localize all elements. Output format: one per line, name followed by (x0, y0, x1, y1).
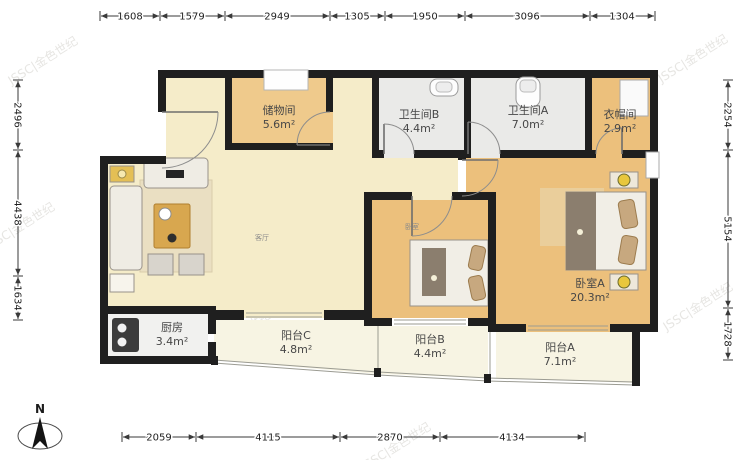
room-label-balconyC: 阳台C (281, 328, 311, 342)
kitchen-stove (112, 318, 139, 352)
dim-label: 1304 (609, 12, 634, 23)
wall-segment (500, 150, 596, 158)
bathB-toilet-tank (436, 82, 452, 92)
sliding-door-line (394, 320, 466, 324)
wall-segment (208, 306, 216, 334)
ruler-left: 2496 4438 1634 (12, 80, 24, 320)
wall-segment (100, 306, 108, 364)
room-label-living: 客厅 (255, 233, 269, 242)
north-arrow: N (18, 402, 62, 449)
room-area-balconyB: 4.4m² (414, 347, 447, 360)
bed-lamp-dot (431, 275, 437, 281)
dim-label: 5154 (722, 216, 733, 241)
room-label-storage: 储物间 (263, 103, 296, 117)
wall-segment (610, 324, 650, 332)
bedA-lamp-dot (577, 229, 583, 235)
dim-label: 4134 (499, 433, 524, 444)
ruler-top: 1608 1579 2949 1305 1950 3096 1304 (100, 11, 655, 23)
wall-segment (158, 70, 166, 112)
dim-label: 2870 (377, 433, 402, 444)
wall-segment (100, 156, 166, 164)
wall-segment (100, 356, 216, 364)
wall-segment (585, 78, 592, 158)
dim-label: 3096 (514, 12, 539, 23)
dim-label: 1634 (12, 285, 23, 310)
dim-label: 2254 (722, 102, 733, 127)
wall-segment (372, 150, 384, 158)
compass-label: N (35, 402, 45, 416)
ruler-right: 2254 5154 1728 (722, 80, 734, 360)
sofa-main (110, 186, 142, 270)
room-label-balconyA: 阳台A (545, 340, 575, 354)
room-label-bedroomA: 卧室A (575, 276, 605, 290)
dim-label: 2059 (146, 433, 171, 444)
dim-label: 2496 (12, 102, 23, 127)
dim-label: 2949 (264, 12, 289, 23)
ottoman (148, 254, 173, 275)
wall-segment (364, 192, 372, 326)
kettle-icon (168, 234, 177, 243)
burner-icon (118, 324, 127, 333)
glazing-post (484, 374, 491, 383)
wall-segment (100, 156, 108, 314)
bedroom-bed-chaise (422, 248, 446, 296)
wall-segment (632, 326, 640, 386)
room-label-bathA: 卫生间A (508, 103, 549, 117)
dim-label: 4438 (12, 200, 23, 225)
floor-plan-canvas: JSSC|金色世纪 JSSC|金色世纪 JSSC|金色世纪 JSSC|金色世纪 … (0, 0, 746, 460)
room-label-balconyB: 阳台B (415, 332, 445, 346)
ottoman (179, 254, 204, 275)
room-area-storage: 5.6m² (263, 118, 296, 131)
wall-segment (372, 78, 379, 158)
wall-segment (650, 70, 658, 332)
room-area-cloakroom: 2.9m² (604, 122, 637, 135)
dim-label: 1608 (117, 12, 142, 23)
glazing-post (374, 368, 381, 377)
dim-label: 1728 (722, 321, 733, 346)
room-label-bedroom: 卧室 (405, 222, 419, 231)
wall-segment (225, 78, 232, 150)
wall-segment (225, 143, 333, 150)
watermark-text: JSSC|金色世纪 (654, 31, 730, 86)
room-area-kitchen: 3.4m² (156, 335, 189, 348)
watermark-text: JSSC|金色世纪 (0, 199, 57, 254)
wall-segment (208, 342, 216, 364)
dim-label: 1305 (344, 12, 369, 23)
tv-console (166, 170, 184, 178)
room-label-cloakroom: 衣帽间 (604, 107, 637, 121)
room-label-kitchen: 厨房 (161, 321, 183, 334)
wall-segment (326, 78, 333, 112)
dim-label: 4115 (255, 433, 280, 444)
side-table (110, 274, 134, 292)
bedroomA-window (646, 152, 659, 178)
nightstand-lamp-icon (618, 174, 630, 186)
room-label-bathB: 卫生间B (399, 107, 440, 121)
room-area-bedroomA: 20.3m² (570, 291, 610, 304)
wall-segment (496, 324, 526, 332)
dim-label: 1950 (412, 12, 437, 23)
wall-segment (100, 306, 216, 314)
wall-segment (458, 150, 466, 160)
room-area-balconyA: 7.1m² (544, 355, 577, 368)
bathA-toilet-tank (520, 80, 536, 92)
nightstand-lamp-icon (618, 276, 630, 288)
storage-window (264, 70, 308, 90)
floor-plan-page: JSSC|金色世纪 JSSC|金色世纪 JSSC|金色世纪 JSSC|金色世纪 … (0, 0, 746, 460)
dim-label: 1579 (179, 12, 204, 23)
wall-segment (158, 70, 658, 78)
room-area-balconyC: 4.8m² (280, 343, 313, 356)
room-area-bathA: 7.0m² (512, 118, 545, 131)
wall-segment (468, 318, 496, 326)
wall-segment (488, 192, 496, 332)
ruler-bottom: 2059 4115 2870 4134 (122, 432, 585, 444)
wall-segment (364, 192, 412, 200)
wall-segment (364, 318, 392, 326)
lamp-icon (118, 170, 126, 178)
tea-set-icon (159, 208, 171, 220)
wall-segment (216, 310, 244, 320)
room-area-bathB: 4.4m² (403, 122, 436, 135)
burner-icon (118, 338, 127, 347)
